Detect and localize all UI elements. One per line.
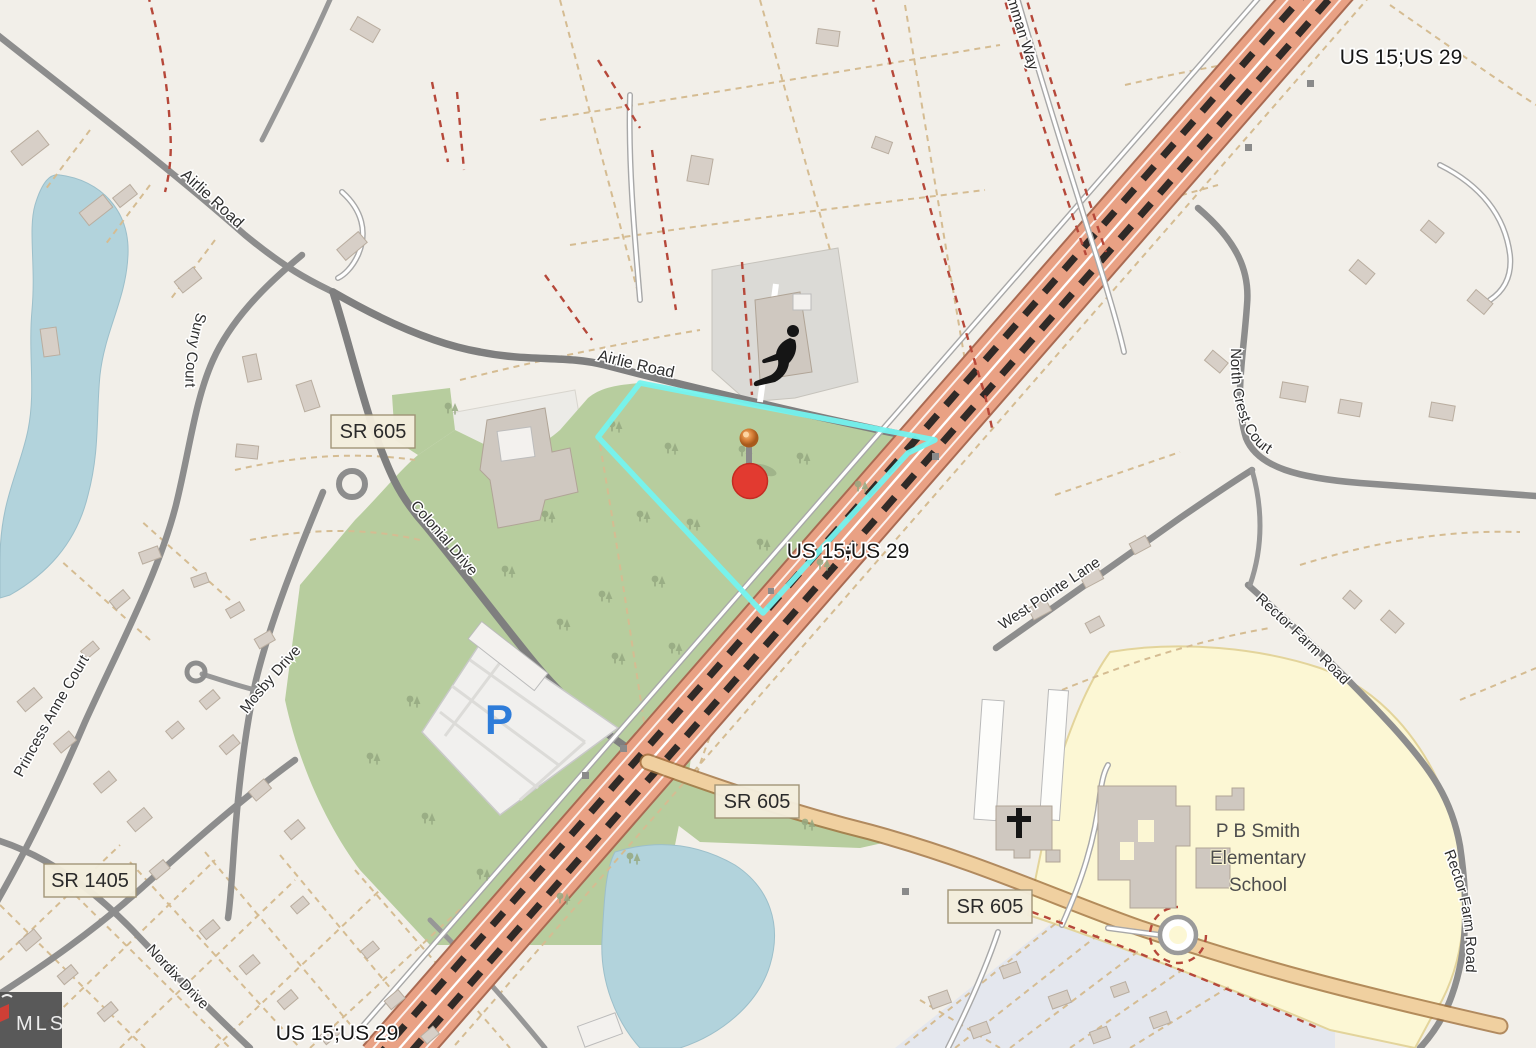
- mls-label: MLS: [16, 1013, 66, 1035]
- shield-label: SR 1405: [51, 870, 129, 892]
- school-name-line3: School: [1229, 875, 1287, 896]
- pin-dot: [733, 464, 768, 499]
- label-us15-us29-bottom: US 15;US 29: [276, 1022, 399, 1045]
- label-us15-us29-mid: US 15;US 29: [787, 540, 910, 563]
- roundabout: [1160, 917, 1196, 953]
- parking-icon: P: [485, 696, 513, 743]
- shield-label: SR 605: [957, 896, 1024, 918]
- map-canvas[interactable]: SR 605 SR 605 SR 605 SR 1405 Airlie Road…: [0, 0, 1536, 1048]
- shield-label: SR 605: [340, 421, 407, 443]
- shield-sr605-west: SR 605: [331, 415, 415, 448]
- shield-sr605-east: SR 605: [948, 890, 1032, 923]
- shield-sr1405: SR 1405: [44, 864, 136, 897]
- mls-watermark: MLS: [0, 992, 66, 1048]
- shield-label: SR 605: [724, 791, 791, 813]
- school-name-line2: Elementary: [1210, 848, 1307, 869]
- school-name-line1: P B Smith: [1216, 821, 1300, 842]
- shield-sr605-mid: SR 605: [715, 785, 799, 818]
- church-building: [996, 806, 1052, 858]
- label-us15-us29-top: US 15;US 29: [1340, 46, 1463, 69]
